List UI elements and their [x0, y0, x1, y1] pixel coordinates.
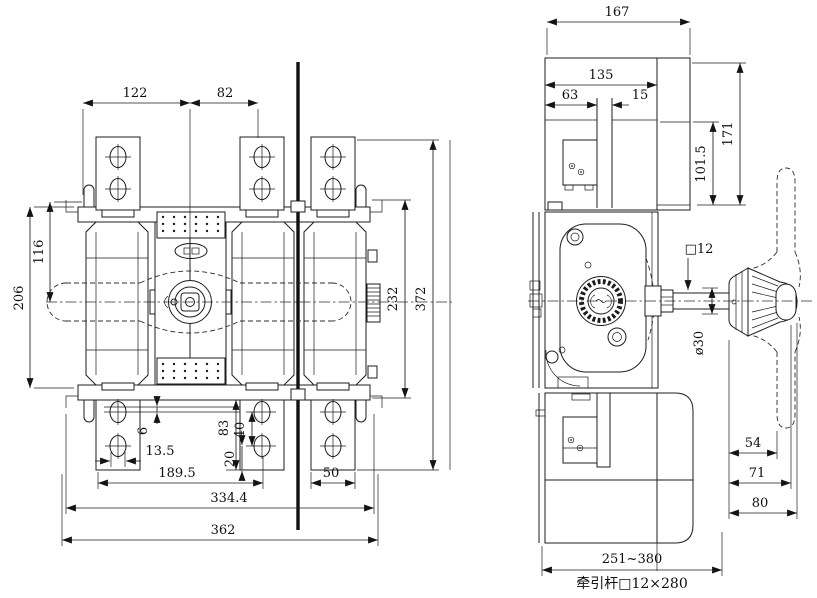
dim-15: 15 [612, 88, 648, 105]
dim-206-label: 206 [12, 286, 27, 311]
dim-13-5-label: 13.5 [146, 444, 175, 459]
dim-189-5-label: 189.5 [158, 466, 195, 481]
dim-63: 63 [545, 88, 597, 105]
hook-top-left [84, 185, 94, 207]
dim-362-label: 362 [211, 523, 236, 538]
traction-rod-note: 牵引杆□12×280 [576, 576, 688, 592]
label-square-shaft: □12 [685, 242, 714, 290]
dim-63-label: 63 [562, 88, 579, 103]
bottom-compartment [536, 393, 693, 543]
dim-101-5-label: 101.5 [694, 145, 709, 182]
pole-columns [86, 222, 380, 385]
dim-206: 206 [12, 207, 74, 388]
dim-122-label: 122 [123, 86, 148, 101]
dim-dia-30-label: ø30 [692, 331, 707, 355]
side-tab [368, 250, 377, 262]
dim-71: 71 [729, 325, 791, 489]
dim-167: 167 [547, 5, 690, 55]
dim-171-label: 171 [721, 122, 736, 147]
dim-372-label: 372 [414, 287, 429, 312]
nameplate [175, 244, 207, 259]
dim-362: 362 [62, 474, 378, 546]
front-view: 122 82 116 206 232 [12, 62, 452, 546]
dim-range-251-380: 251~380 [542, 532, 722, 576]
dim-20-label: 20 [223, 451, 238, 468]
dim-116-label: 116 [32, 240, 47, 265]
technical-drawing: 122 82 116 206 232 [0, 0, 817, 598]
dim-range-label: 251~380 [602, 552, 663, 567]
side-view: 167 135 63 15 171 [528, 5, 812, 592]
dim-135-label: 135 [589, 68, 614, 83]
dim-83-label: 83 [217, 420, 232, 437]
dim-82: 82 [190, 86, 258, 138]
top-terminals [96, 137, 355, 217]
phase-barrier-plate [291, 62, 305, 530]
hook-bottom-right [356, 400, 366, 422]
dim-80: 80 [729, 323, 797, 519]
dim-54-label: 54 [745, 436, 762, 451]
dim-6-label: 6 [136, 427, 151, 435]
dim-82-label: 82 [217, 86, 234, 101]
dim-dia-30: ø30 [692, 288, 718, 355]
ribbed-shaft-end [367, 284, 380, 322]
dim-71-label: 71 [749, 466, 766, 481]
drawing-canvas: 122 82 116 206 232 [0, 0, 817, 598]
dim-171: 171 [692, 63, 746, 205]
dim-50-label: 50 [323, 466, 340, 481]
dim-80-label: 80 [752, 496, 769, 511]
dim-54: 54 [729, 340, 777, 519]
dim-101-5: 101.5 [693, 122, 719, 205]
dim-334-4-label: 334.4 [210, 491, 247, 506]
dim-135: 135 [545, 68, 657, 85]
side-tab [368, 366, 377, 378]
top-shroud [545, 58, 690, 210]
terminal-block-top [563, 140, 597, 190]
dim-15-label: 15 [632, 88, 649, 103]
dim-116: 116 [32, 202, 82, 302]
hook-bottom-left [84, 400, 94, 422]
operating-handle [729, 268, 797, 336]
label-square-shaft-text: □12 [685, 242, 714, 257]
dim-40-label: 40 [233, 422, 248, 439]
terminal-block-bottom [563, 393, 610, 467]
dim-167-label: 167 [605, 5, 630, 20]
hook-top-right [356, 185, 366, 207]
dim-20: 20 [223, 436, 242, 480]
mechanism-side-plate [530, 202, 661, 388]
dim-232-label: 232 [386, 287, 401, 312]
